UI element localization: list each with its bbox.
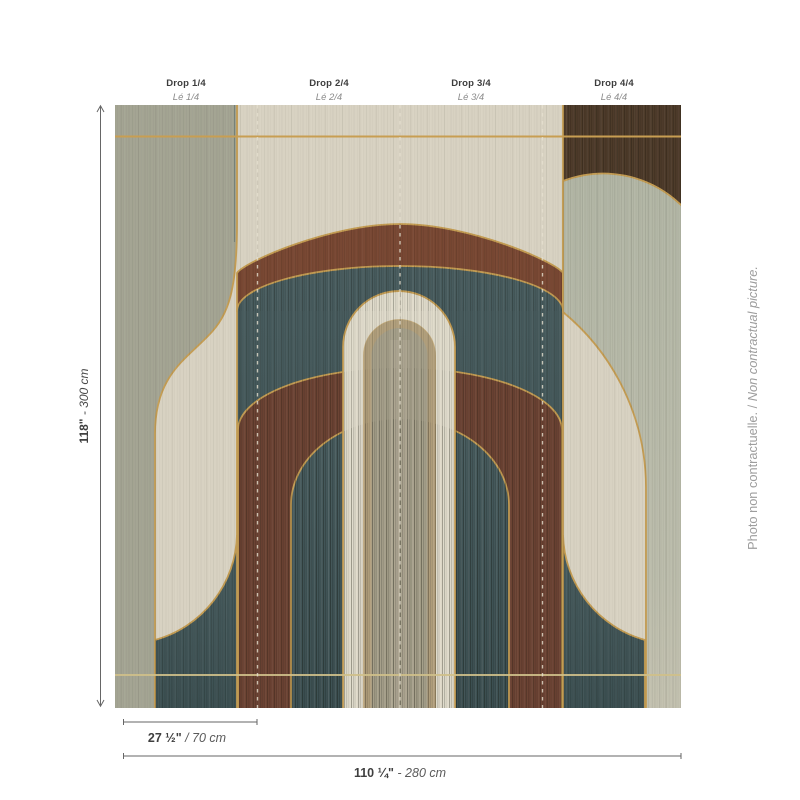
svg-text:Lé 2/4: Lé 2/4 [316, 92, 342, 103]
svg-text:Lé 3/4: Lé 3/4 [458, 92, 484, 103]
svg-text:Drop 1/4: Drop 1/4 [166, 78, 206, 89]
svg-text:Drop 3/4: Drop 3/4 [451, 78, 491, 89]
svg-text:Lé 1/4: Lé 1/4 [173, 92, 199, 103]
svg-text:118" - 300 cm: 118" - 300 cm [77, 368, 91, 443]
svg-text:27 ½" / 70 cm: 27 ½" / 70 cm [148, 731, 226, 745]
svg-text:Photo non contractuelle. / Non: Photo non contractuelle. / Non contractu… [745, 266, 760, 550]
svg-text:Drop 4/4: Drop 4/4 [594, 78, 634, 89]
svg-text:110 ¼" - 280 cm: 110 ¼" - 280 cm [354, 766, 446, 780]
svg-text:Lé 4/4: Lé 4/4 [601, 92, 627, 103]
svg-text:Drop 2/4: Drop 2/4 [309, 78, 349, 89]
